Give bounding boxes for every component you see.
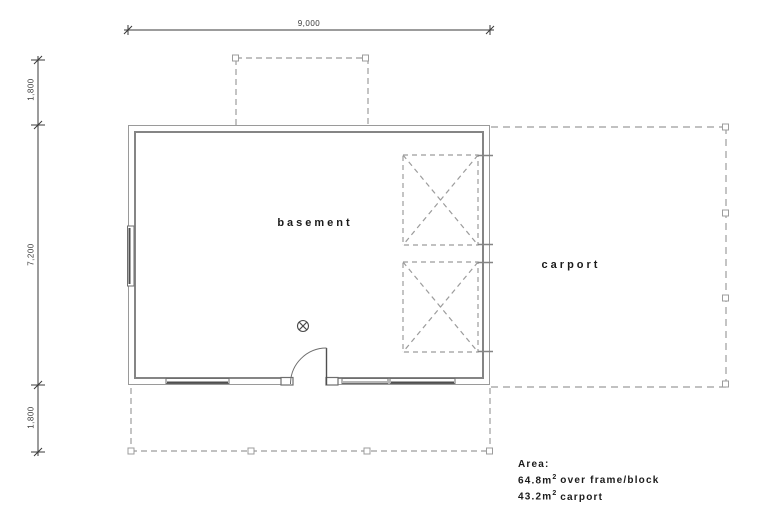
floor-plan-svg [0,0,768,512]
area-superscript: 2 [552,490,556,497]
carport-room-label: carport [501,259,641,271]
post-square [723,210,729,216]
lower-deck-outline [131,388,490,451]
area-note: Area: 64.8m2over frame/block 43.2m2carpo… [518,458,660,504]
door-jamb [326,378,338,386]
window [390,379,455,384]
dimension-left-middle-label: 7,200 [27,225,36,285]
circle-x-symbol [298,321,309,332]
left-wall-window [128,226,135,286]
door-opening-gap [293,374,326,387]
post-square [723,124,729,130]
post-square [128,448,134,454]
dimension-left-lower-label: 1,800 [27,388,36,448]
area-value: 43.2m [518,492,552,503]
upper-deck-outline [236,58,368,125]
dashed-cross-box-1 [403,155,478,245]
post-square [723,295,729,301]
basement-room-label: basement [245,217,385,229]
post-square [723,381,729,387]
window [342,379,388,384]
dimension-left-upper-label: 1,800 [27,60,36,120]
dashed-cross-box-2 [403,262,478,352]
area-description: over frame/block [560,475,659,486]
post-square [363,55,369,61]
post-square [487,448,493,454]
area-description: carport [560,492,603,503]
post-square [248,448,254,454]
area-note-heading: Area: [518,458,660,471]
right-wall-ticks [478,156,493,352]
window [166,379,229,384]
carport-outline [491,127,726,387]
floor-plan-page: 9,000 1,800 7,200 1,800 basement carport… [0,0,768,512]
basement-walls [129,126,490,385]
post-square [233,55,239,61]
area-note-line: 43.2m2carport [518,487,660,503]
post-square [364,448,370,454]
area-value: 64.8m [518,475,552,486]
dimension-width-label: 9,000 [279,19,339,28]
area-superscript: 2 [552,474,556,481]
area-note-line: 64.8m2over frame/block [518,471,660,487]
